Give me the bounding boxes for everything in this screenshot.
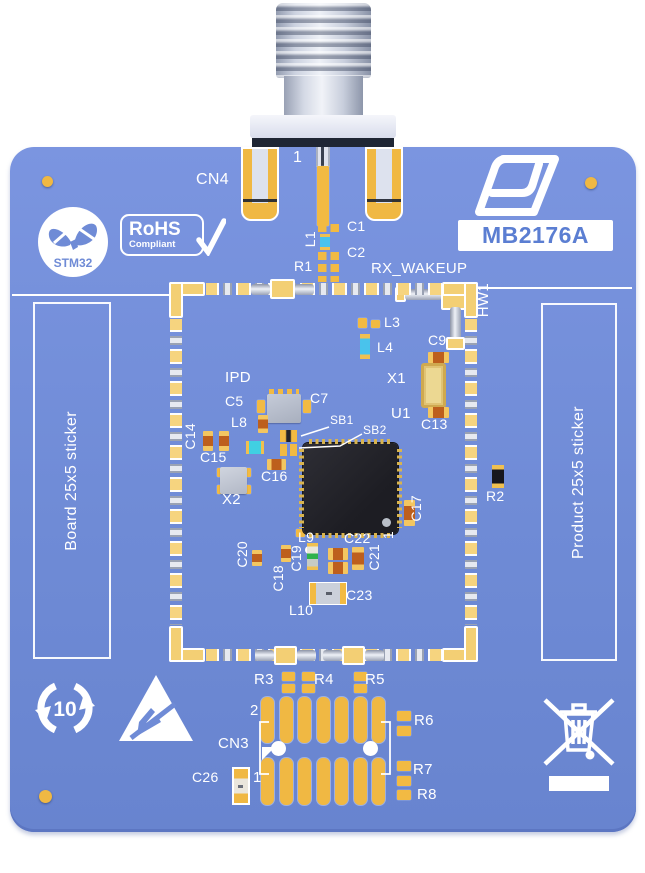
weee-underline (549, 776, 609, 791)
stm32-butterfly-logo: STM32 (37, 206, 109, 278)
page-background: Board 25x5 sticker Product 25x5 sticker … (0, 0, 645, 873)
rohs-title: RoHS (129, 220, 202, 239)
product-code-badge: MB2176A (458, 220, 613, 251)
board-sticker-label: Board 25x5 sticker (63, 411, 81, 551)
pin1-marker (382, 518, 391, 527)
st-logo-icon (470, 154, 560, 218)
sma-connector-barrel (284, 76, 363, 117)
sma-connector-flange (250, 115, 396, 138)
sma-connector-shadow (252, 138, 394, 147)
stm32-logo-text: STM32 (54, 256, 93, 270)
chip-pins (309, 439, 392, 444)
product-sticker-label: Product 25x5 sticker (570, 406, 588, 559)
sma-connector-threads (276, 3, 371, 78)
china-rohs-10-icon: 10 (34, 677, 96, 739)
product-code-text: MB2176A (482, 222, 589, 249)
u1-chip (303, 443, 398, 534)
board-sticker-area: Board 25x5 sticker (33, 302, 111, 659)
rohs-box: RoHS Compliant (120, 214, 204, 256)
chip-pins (299, 449, 304, 528)
rohs-badge: RoHS Compliant (120, 212, 226, 260)
esd-warning-icon (117, 672, 195, 744)
rohs-subtitle: Compliant (129, 239, 202, 250)
chip-pins (397, 449, 402, 528)
chip-pins (309, 533, 392, 538)
weee-bin-icon (533, 692, 623, 772)
product-sticker-area: Product 25x5 sticker (541, 303, 617, 661)
checkmark-icon (196, 218, 226, 256)
recycle-number: 10 (53, 698, 76, 721)
